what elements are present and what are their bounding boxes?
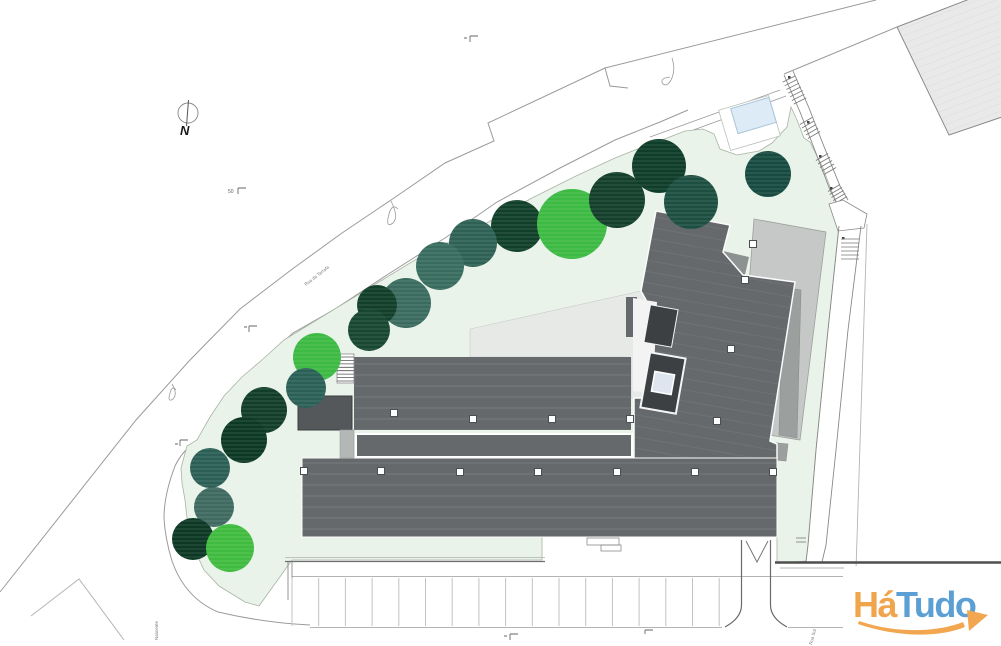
svg-text:50: 50 [228, 189, 234, 195]
svg-text:N: N [180, 123, 190, 138]
svg-text:HáTudo: HáTudo [853, 584, 976, 625]
svg-text:Nascente: Nascente [154, 620, 159, 640]
